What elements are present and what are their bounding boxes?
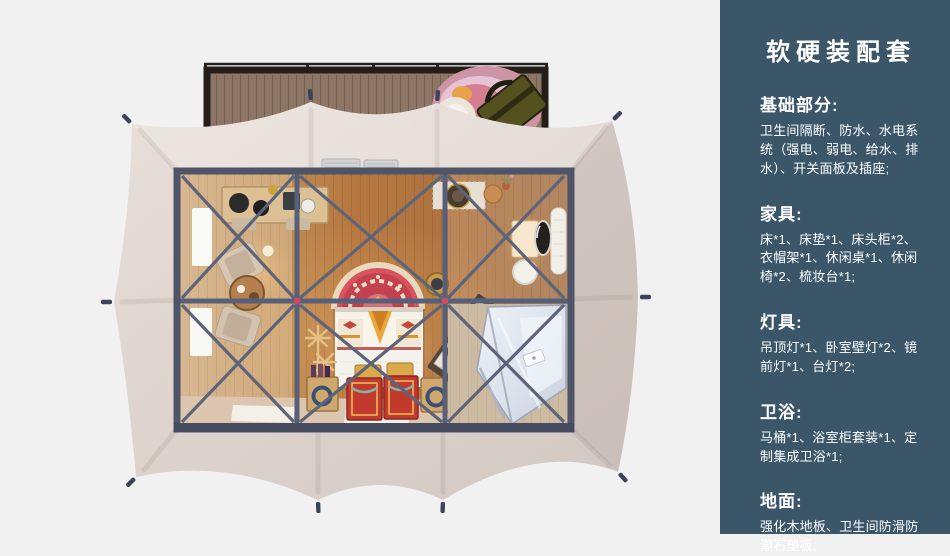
wall-panel [192, 208, 212, 266]
section-heading: 基础部分: [760, 91, 928, 116]
hat [229, 193, 249, 213]
floor-plan-illustration [0, 0, 720, 534]
coffee-table [230, 276, 264, 310]
spec-section-flooring: 地面: 强化木地板、卫生间防滑防潮石塑板; [760, 487, 928, 556]
floor-lamp [262, 245, 274, 257]
frame-connector [294, 298, 300, 304]
panel-title: 软硬装配套 [754, 32, 928, 67]
spec-section-lighting: 灯具: 吊顶灯*1、卧室壁灯*2、镜前灯*1、台灯*2; [760, 308, 928, 377]
spec-section-furniture: 家具: 床*1、床垫*1、床头柜*2、衣帽架*1、休闲桌*1、休闲椅*2、梳妆台… [760, 200, 928, 288]
section-body: 卫生间隔断、防水、水电系统（强电、弱电、给水、排水）、开关面板及插座; [760, 122, 928, 179]
vanity-mirror [535, 221, 551, 255]
vanity-bench [551, 208, 566, 274]
section-body: 强化木地板、卫生间防滑防潮石塑板; [760, 518, 928, 556]
section-body: 床*1、床垫*1、床头柜*2、衣帽架*1、休闲桌*1、休闲椅*2、梳妆台*1; [760, 231, 928, 288]
rattan-chair [484, 185, 502, 203]
spec-section-basics: 基础部分: 卫生间隔断、防水、水电系统（强电、弱电、给水、排水）、开关面板及插座… [760, 91, 928, 179]
section-heading: 卫浴: [760, 398, 928, 423]
floor-plan-canvas [0, 0, 720, 534]
section-body: 马桶*1、浴室柜套装*1、定制集成卫浴*1; [760, 429, 928, 467]
section-body: 吊顶灯*1、卧室壁灯*2、镜前灯*1、台灯*2; [760, 339, 928, 377]
section-heading: 灯具: [760, 308, 928, 333]
section-heading: 家具: [760, 200, 928, 225]
spec-panel: 软硬装配套 基础部分: 卫生间隔断、防水、水电系统（强电、弱电、给水、排水）、开… [720, 0, 950, 534]
section-heading: 地面: [760, 487, 928, 512]
console-table [222, 185, 328, 230]
frame-connector [442, 298, 448, 304]
spec-section-bathroom: 卫浴: 马桶*1、浴室柜套装*1、定制集成卫浴*1; [760, 398, 928, 467]
